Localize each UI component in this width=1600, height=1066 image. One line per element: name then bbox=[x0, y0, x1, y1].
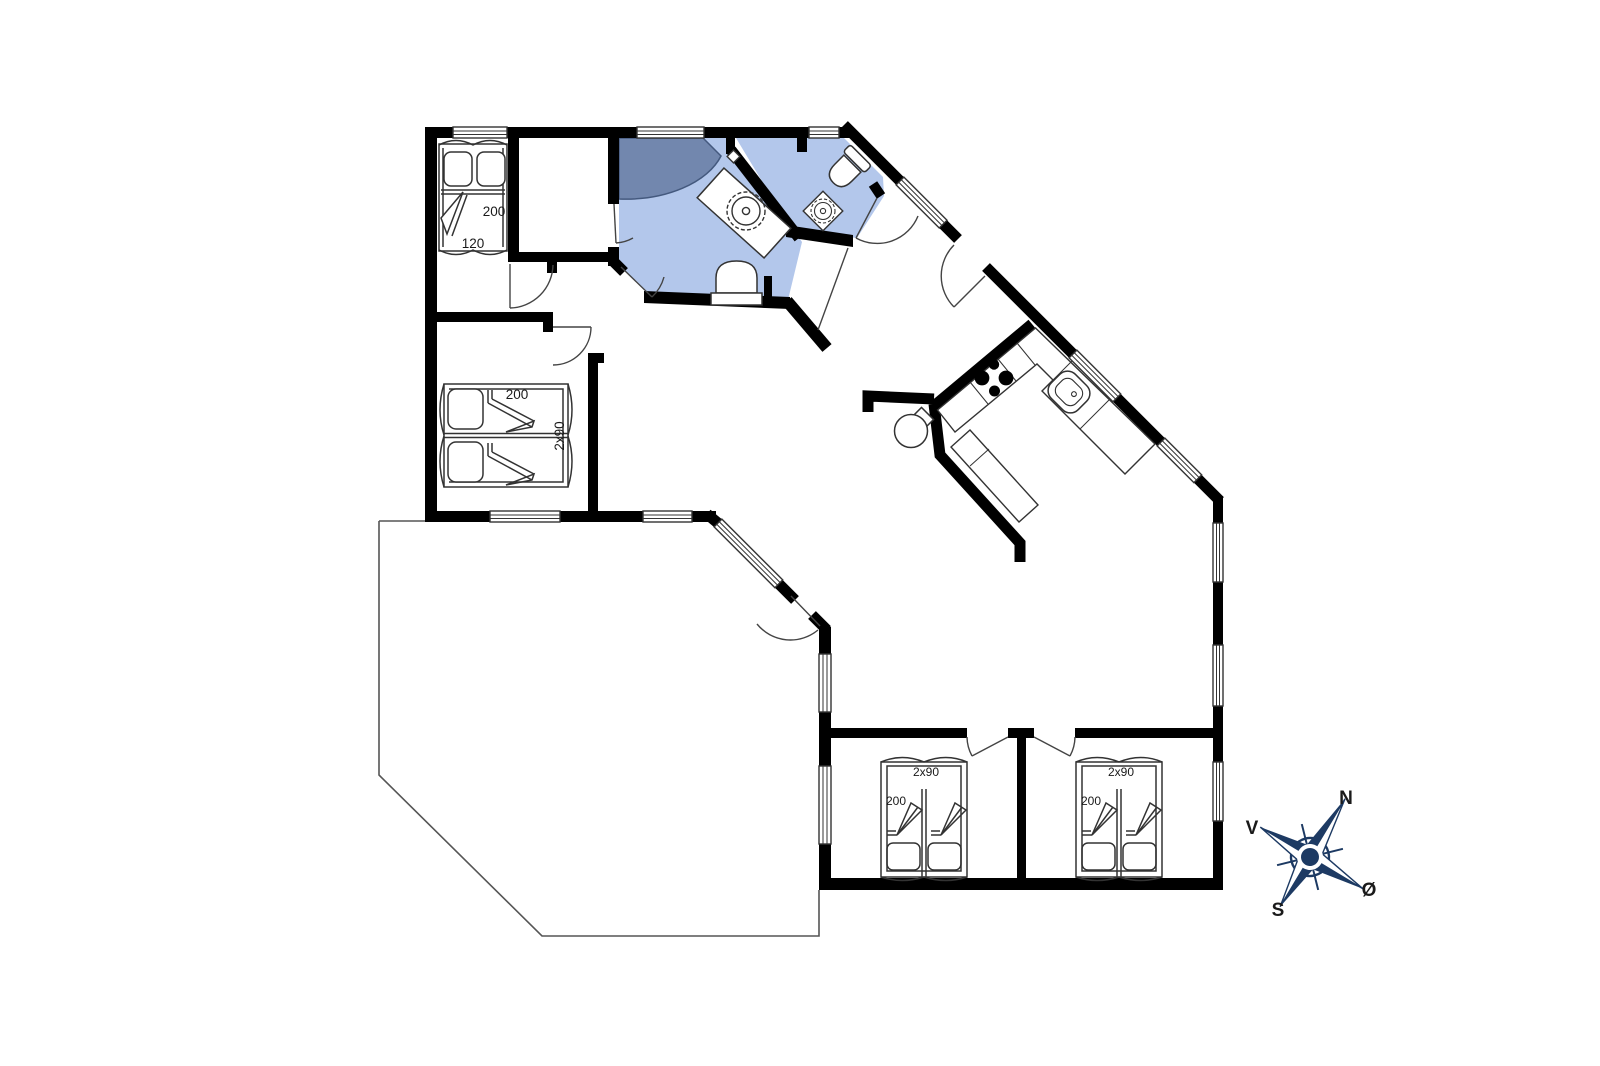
svg-text:V: V bbox=[1246, 818, 1259, 839]
svg-text:200: 200 bbox=[886, 794, 906, 808]
svg-text:200: 200 bbox=[1081, 794, 1101, 808]
svg-text:200: 200 bbox=[506, 387, 529, 402]
svg-text:200: 200 bbox=[483, 204, 506, 219]
svg-text:N: N bbox=[1339, 788, 1353, 809]
svg-text:2x90: 2x90 bbox=[913, 765, 939, 779]
svg-text:120: 120 bbox=[462, 236, 485, 251]
svg-text:Ø: Ø bbox=[1362, 880, 1377, 901]
svg-text:2x90: 2x90 bbox=[552, 421, 567, 450]
svg-text:S: S bbox=[1272, 900, 1285, 921]
svg-text:2x90: 2x90 bbox=[1108, 765, 1134, 779]
